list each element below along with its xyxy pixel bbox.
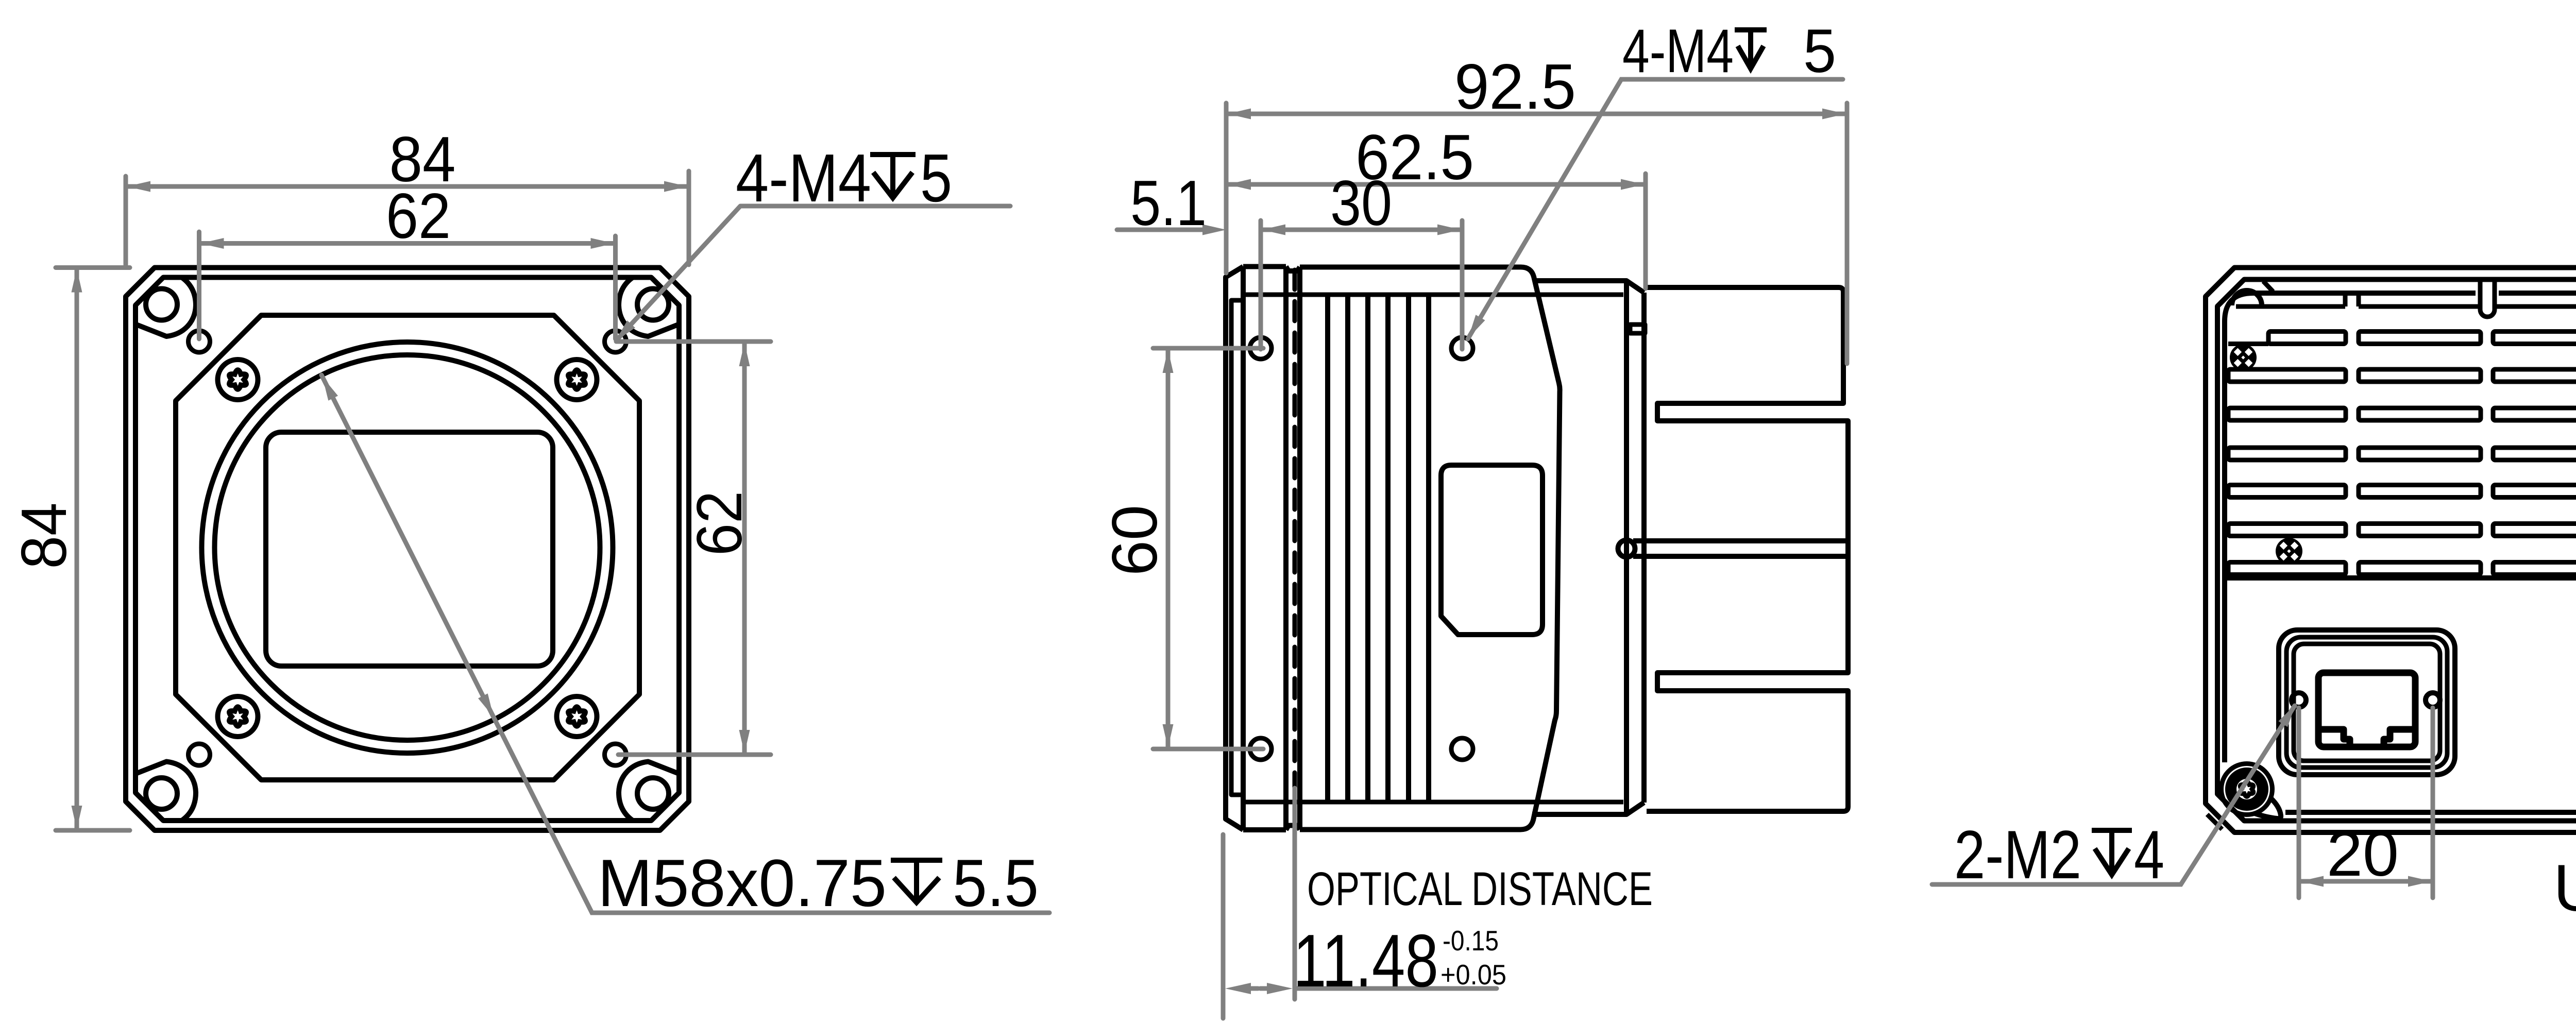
svg-text:30: 30 <box>1330 168 1392 239</box>
svg-text:5: 5 <box>920 140 952 216</box>
svg-text:60: 60 <box>1099 505 1171 576</box>
svg-text:OPTICAL DISTANCE: OPTICAL DISTANCE <box>1307 863 1653 915</box>
svg-text:92.5: 92.5 <box>1454 52 1576 123</box>
svg-text:20: 20 <box>2327 819 2399 890</box>
svg-text:5.5: 5.5 <box>953 845 1039 920</box>
svg-text:4: 4 <box>2134 817 2164 893</box>
svg-text:62: 62 <box>386 181 451 252</box>
svg-text:62: 62 <box>684 491 755 556</box>
svg-text:84: 84 <box>9 503 80 569</box>
svg-text:M58x0.75: M58x0.75 <box>598 845 887 920</box>
svg-text:-0.15: -0.15 <box>1443 925 1499 957</box>
svg-text:Unit: mm: Unit: mm <box>2553 851 2576 925</box>
svg-text:4-M4: 4-M4 <box>736 140 871 216</box>
svg-text:5.1: 5.1 <box>1130 168 1207 239</box>
svg-text:11.48: 11.48 <box>1293 919 1438 1002</box>
svg-text:5: 5 <box>1803 16 1836 86</box>
svg-text:2-M2: 2-M2 <box>1954 817 2081 893</box>
svg-text:+0.05: +0.05 <box>1440 959 1506 991</box>
svg-text:4-M4: 4-M4 <box>1622 16 1734 86</box>
